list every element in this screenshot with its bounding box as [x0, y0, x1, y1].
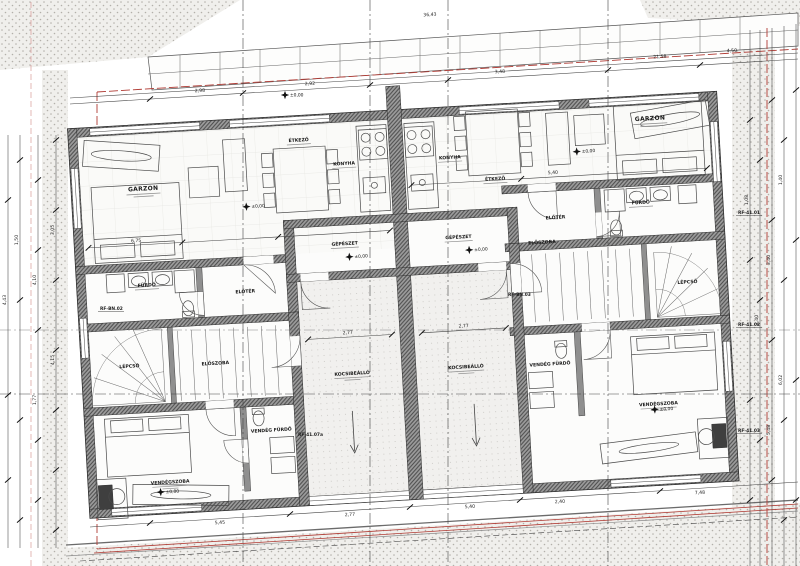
dim-top-4: 21,58 [653, 54, 667, 61]
dim-carport-right: 2,77 [458, 323, 469, 330]
dim-bottom-0: 5,45 [215, 520, 226, 527]
building: GARZON GARZON KONYHA KONYHA ÉTKEZŐ ÉTKEZ… [66, 67, 739, 520]
floor-plan-svg: GARZON GARZON KONYHA KONYHA ÉTKEZŐ ÉTKEZ… [0, 0, 800, 566]
floor-carport-right [411, 270, 524, 496]
dim-top-3: 3,48 [495, 69, 506, 76]
dim-bottom-3: 2,40 [555, 499, 566, 506]
opening-tag-rf6: RF-41.07a [298, 432, 323, 438]
level-text: ±0,00 [354, 253, 368, 260]
dim-left-0: 4,43 [2, 295, 8, 305]
dim-bottom-1: 2,77 [345, 512, 356, 519]
dotted-strip-right [732, 27, 775, 566]
floor-carport-left [297, 276, 410, 502]
opening-tag-rf4: RF-BN.02 [100, 306, 123, 312]
dim-garzon-left: 6,75 [131, 238, 142, 245]
dim-right-5: 6,02 [778, 375, 784, 385]
level-text: ±0,00 [251, 203, 265, 210]
dim-left-5: 4,15 [50, 355, 56, 365]
dim-top-2: 2,92 [305, 81, 316, 88]
dim-left-1: 1,50 [14, 235, 20, 245]
dim-top-0: 36,43 [423, 12, 437, 19]
level-text: ±0,00 [660, 406, 674, 413]
dim-left-3: 1,77 [32, 395, 38, 405]
dim-right-3: 5,48 [766, 425, 772, 435]
dim-bottom-4: 7,48 [695, 490, 706, 497]
level-text: ±0,00 [582, 148, 596, 155]
dim-left-4: 3,05 [50, 225, 56, 235]
dim-top-5: 4,50 [727, 48, 738, 55]
floor-plan-drawing: GARZON GARZON KONYHA KONYHA ÉTKEZŐ ÉTKEZ… [0, 0, 800, 566]
level-text: ±0,00 [290, 93, 304, 99]
dim-carport-left: 2,77 [343, 330, 354, 337]
level-text: ±0,00 [474, 246, 488, 253]
opening-tag-rf5: RF-BN.03 [508, 292, 531, 298]
dim-left-2: 4,10 [32, 275, 38, 285]
dim-right-4: 1,40 [778, 175, 784, 185]
opening-tag-rf2: RF-41.02 [738, 322, 760, 328]
dim-right-0: 1,08 [744, 195, 750, 205]
dim-top-1: 2,98 [195, 88, 206, 95]
dim-garzon-right: 5,40 [548, 170, 559, 177]
opening-tag-rf3: RF-41.03 [738, 428, 760, 434]
dim-bottom-2: 5,40 [465, 504, 476, 511]
opening-tag-rf1: RF-41.01 [738, 210, 760, 216]
level-text: ±0,00 [166, 489, 180, 496]
dim-right-2: 3,40 [766, 255, 772, 265]
dotted-strip-left [42, 70, 68, 566]
